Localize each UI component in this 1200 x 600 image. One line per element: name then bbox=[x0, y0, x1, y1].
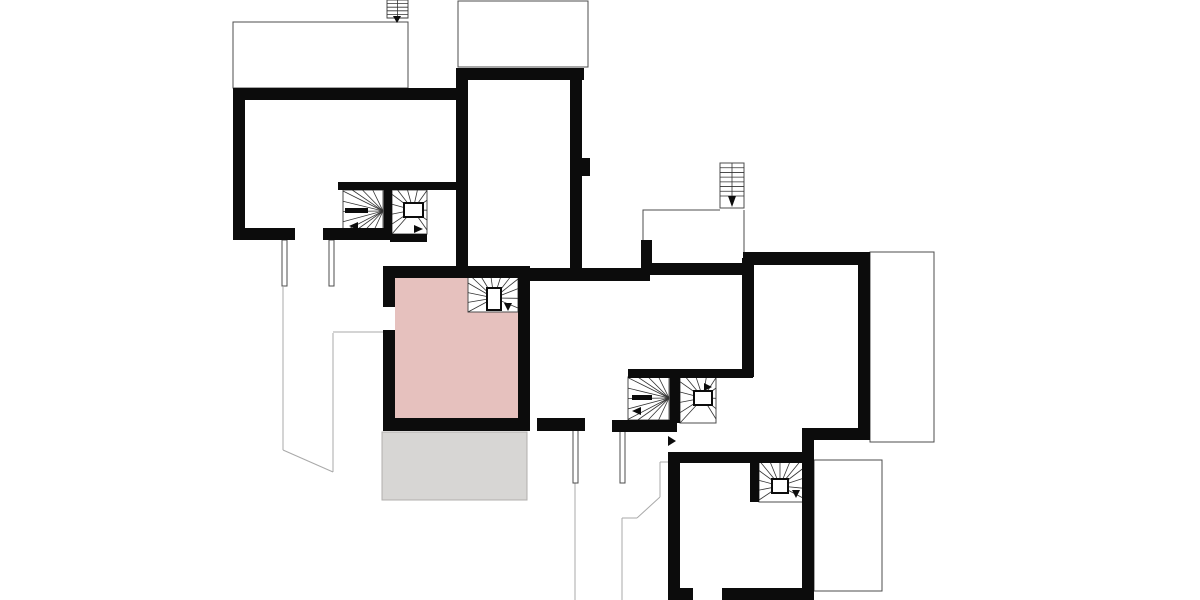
winder-stair-upper-left-b bbox=[392, 190, 427, 234]
wall-mid-north-a bbox=[530, 268, 650, 281]
stair-rail bbox=[632, 395, 652, 400]
wall-right-south bbox=[806, 428, 870, 440]
wall-right-west bbox=[742, 258, 754, 377]
post bbox=[620, 430, 625, 483]
terrace bbox=[382, 432, 527, 500]
wall-stair2-north bbox=[628, 369, 753, 378]
wall-lowerright-south-a bbox=[668, 588, 693, 600]
wall-pink-south bbox=[383, 418, 530, 431]
winder-stair-center-b bbox=[680, 377, 716, 423]
stair-newel bbox=[694, 391, 712, 405]
floor-plan-viewport bbox=[0, 0, 1200, 600]
stair-newel bbox=[772, 479, 788, 493]
wall-right-east bbox=[858, 252, 870, 440]
wall-lowerright-north bbox=[668, 452, 804, 463]
winder-stair-highlighted-room bbox=[468, 277, 518, 312]
stair-newel bbox=[487, 288, 501, 310]
wall-right-north bbox=[743, 252, 867, 265]
wall-stair2-divider bbox=[670, 377, 680, 423]
wall-stair4-west bbox=[750, 452, 759, 502]
wall-lowerright-west bbox=[668, 452, 680, 600]
wall-stair2-south bbox=[612, 420, 677, 432]
wall-upper-left-north bbox=[233, 88, 466, 100]
wall-stair1-south bbox=[390, 234, 427, 242]
stair-newel bbox=[404, 203, 423, 217]
wall-south-door bbox=[537, 418, 585, 431]
floor-plan-canvas bbox=[0, 0, 1200, 600]
wall-upper-left-west bbox=[233, 88, 245, 240]
wall-upper-left-south-b bbox=[323, 228, 390, 240]
winder-stair-lower-right bbox=[759, 462, 803, 502]
wall-stair1-divider bbox=[384, 190, 392, 238]
stair-rail bbox=[345, 208, 368, 213]
wall-central-west bbox=[456, 68, 468, 278]
wall-pink-west-lower bbox=[383, 330, 395, 430]
wall-upper-left-south-a bbox=[233, 228, 295, 240]
winder-stair-upper-left-a bbox=[343, 190, 384, 233]
wall-central-east bbox=[570, 80, 582, 270]
wall-stair1-north bbox=[338, 182, 468, 190]
wall-lowerright-south-b bbox=[722, 588, 814, 600]
wall-central-north bbox=[456, 68, 584, 80]
wall-pink-east bbox=[518, 278, 530, 430]
straight-stair-top-right bbox=[720, 163, 744, 208]
plan-background bbox=[0, 0, 1200, 600]
wall-mid-north-b bbox=[650, 263, 750, 275]
post bbox=[573, 430, 578, 483]
post bbox=[329, 240, 334, 286]
post bbox=[282, 240, 287, 286]
wall-pink-north bbox=[383, 266, 530, 278]
winder-stair-center-a bbox=[628, 377, 670, 420]
wall-central-east-bump bbox=[582, 158, 590, 176]
wall-pink-west-upper bbox=[383, 266, 395, 307]
